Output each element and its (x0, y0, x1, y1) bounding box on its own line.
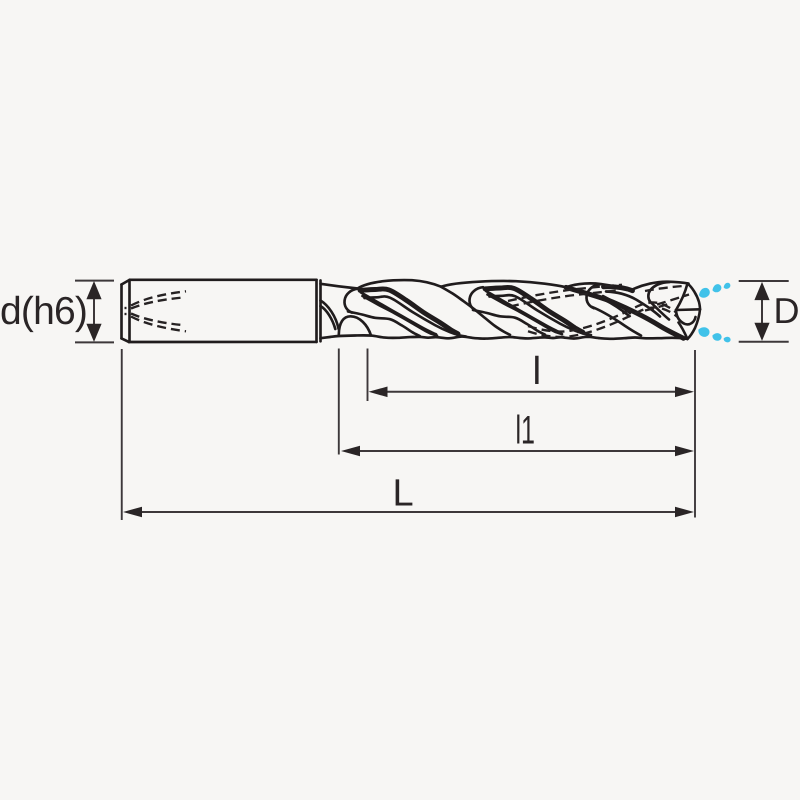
svg-text:L: L (392, 472, 413, 514)
svg-text:l: l (532, 350, 541, 393)
svg-text:D: D (773, 290, 799, 331)
svg-text:l1: l1 (515, 408, 535, 452)
svg-text:d(h6): d(h6) (0, 290, 87, 333)
